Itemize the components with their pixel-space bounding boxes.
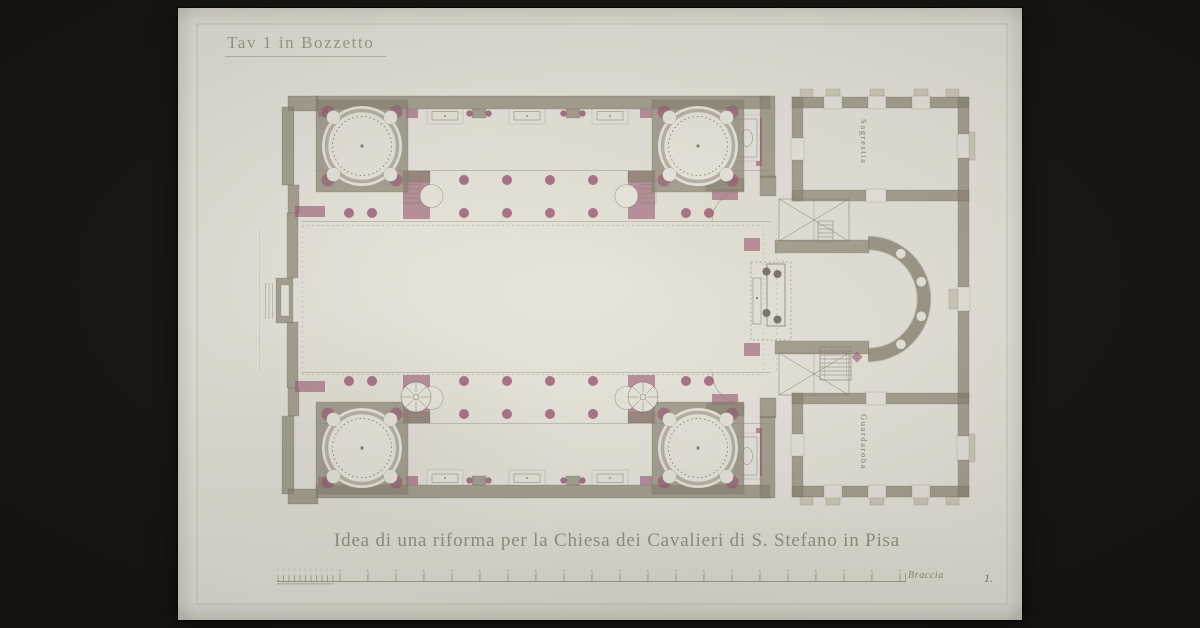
drawing-caption: Idea di una riforma per la Chiesa dei Ca…: [302, 530, 932, 552]
west-facade: [260, 96, 326, 504]
vestibule-crossed: [779, 199, 849, 241]
room-label-sacristy: Sagrestia: [859, 119, 869, 165]
scale-unit-label: Braccia: [908, 570, 944, 581]
scale-bar: [277, 570, 906, 584]
nave-guides: [302, 226, 777, 375]
east-courtyard-wall: [949, 201, 970, 397]
photograph-of-drawing: Tav 1 in Bozzetto Sagrestia Guardaroba I…: [0, 0, 1200, 628]
spiral-stair-west: [401, 382, 431, 412]
plate-label: Tav 1 in Bozzetto: [227, 33, 374, 53]
high-altar: [751, 262, 791, 340]
spiral-stair-east: [628, 382, 658, 412]
plate-label-underline: [225, 56, 386, 57]
room-label-wardrobe: Guardaroba: [859, 414, 869, 470]
retro-choir-apse: [868, 236, 931, 362]
aisle-pier-west: [403, 171, 443, 219]
plate-number: 1.: [984, 571, 993, 586]
sacristy-room: [791, 89, 975, 202]
plan-north-half: [302, 89, 975, 253]
aisle-pier-east: [615, 171, 655, 219]
side-altars: [427, 109, 628, 124]
